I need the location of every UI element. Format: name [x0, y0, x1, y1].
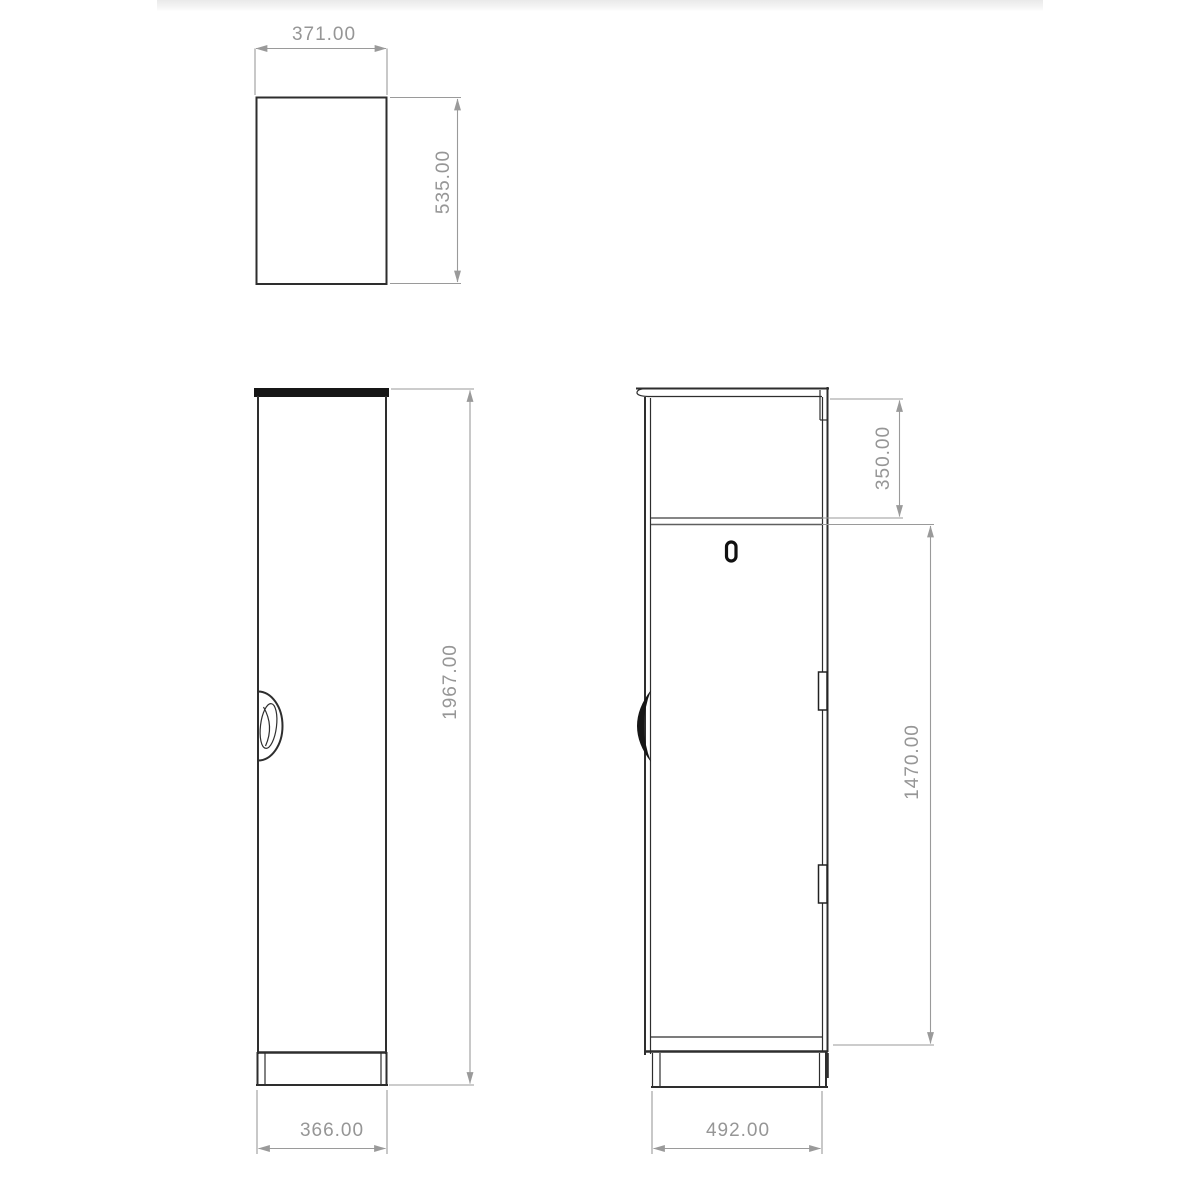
side-top-rear-bracket	[820, 390, 827, 420]
keyhole-icon	[727, 542, 737, 561]
front-view	[254, 388, 474, 1154]
door-handle	[258, 692, 283, 761]
dim-front-height-label: 1967.00	[440, 644, 462, 720]
handle-side-profile	[637, 690, 651, 762]
top-view-outline	[257, 98, 387, 285]
dim-side-depth-label: 492.00	[706, 1120, 770, 1142]
side-view	[637, 388, 934, 1154]
dim-side-upper-label: 350.00	[873, 426, 895, 490]
front-top-panel	[254, 388, 389, 397]
dim-side-door-label: 1470.00	[902, 724, 924, 800]
shelf-divider	[651, 518, 822, 525]
dim-top-width-label: 371.00	[292, 24, 356, 46]
top-view	[255, 49, 461, 285]
dim-front-width-label: 366.00	[300, 1120, 364, 1142]
hinge-top	[819, 672, 828, 710]
technical-drawing-page: 371.00 535.00 1967.00 366.00 350.00 1470…	[0, 0, 1200, 1200]
side-plinth	[652, 1053, 828, 1087]
hinge-bottom	[819, 865, 828, 903]
side-top-panel	[637, 389, 828, 397]
dim-top-depth-label: 535.00	[433, 150, 455, 214]
front-plinth	[257, 1053, 387, 1085]
wardrobe-three-view-drawing	[0, 0, 1200, 1200]
